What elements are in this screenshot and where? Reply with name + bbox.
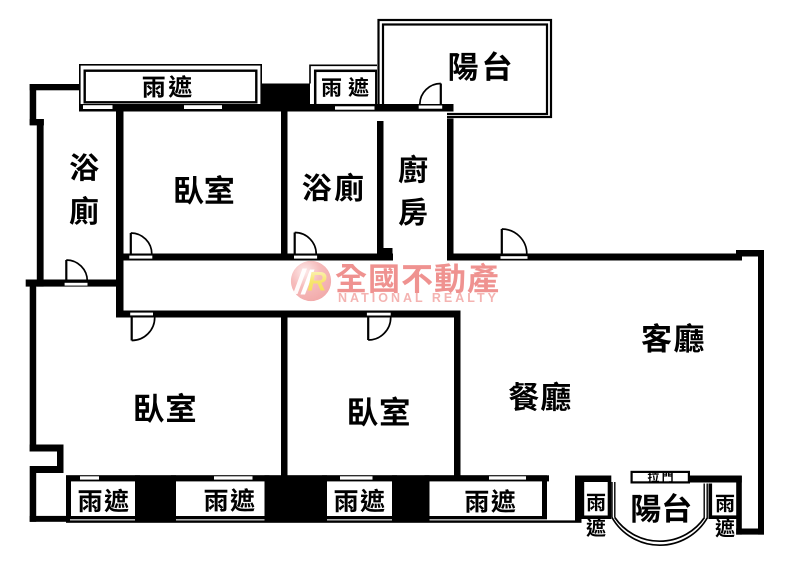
svg-text:R: R	[308, 267, 327, 297]
svg-text:NATIONAL REALTY: NATIONAL REALTY	[338, 291, 499, 305]
